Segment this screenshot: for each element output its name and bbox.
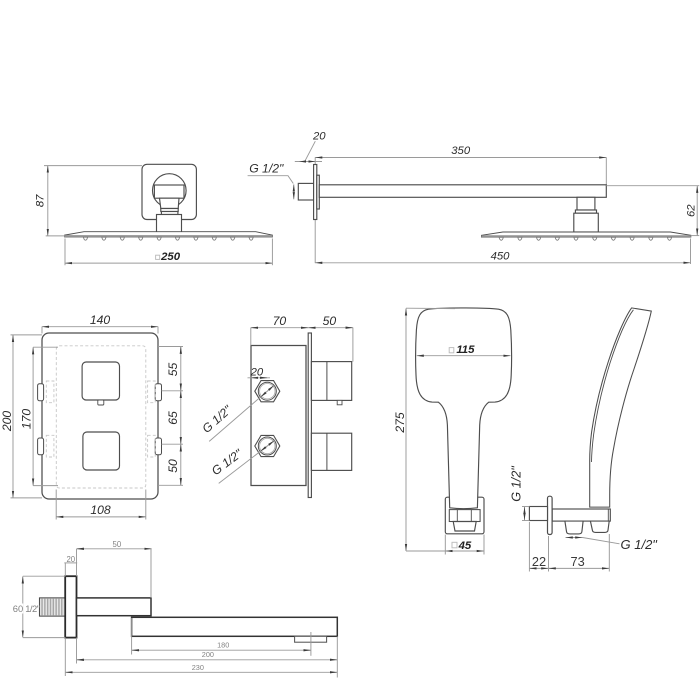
svg-text:50: 50 xyxy=(323,314,337,328)
svg-text:22: 22 xyxy=(532,554,546,569)
svg-text:180: 180 xyxy=(217,640,229,649)
svg-text:73: 73 xyxy=(570,554,584,569)
svg-text:50: 50 xyxy=(113,540,122,549)
svg-text:50: 50 xyxy=(166,459,180,473)
svg-text:G 1/2": G 1/2" xyxy=(249,162,284,176)
svg-text:450: 450 xyxy=(491,250,511,262)
svg-text:87: 87 xyxy=(35,194,47,207)
svg-text:115: 115 xyxy=(456,344,475,356)
svg-text:200: 200 xyxy=(0,411,14,433)
svg-text:20: 20 xyxy=(250,367,264,379)
svg-text:108: 108 xyxy=(90,503,111,517)
svg-text:140: 140 xyxy=(90,313,111,327)
svg-text:G 1/2": G 1/2" xyxy=(621,537,659,552)
svg-text:65: 65 xyxy=(166,411,180,425)
svg-text:70: 70 xyxy=(273,314,287,328)
svg-text:55: 55 xyxy=(166,363,180,377)
svg-text:60: 60 xyxy=(13,603,23,614)
svg-text:62: 62 xyxy=(685,204,697,217)
svg-text:275: 275 xyxy=(393,412,407,434)
svg-text:20: 20 xyxy=(312,130,326,142)
svg-text:170: 170 xyxy=(20,409,34,430)
svg-text:45: 45 xyxy=(458,540,472,552)
svg-text:350: 350 xyxy=(451,145,471,157)
svg-text:G 1/2": G 1/2" xyxy=(509,466,523,502)
svg-text:200: 200 xyxy=(202,650,214,659)
svg-text:250: 250 xyxy=(160,251,181,263)
svg-text:230: 230 xyxy=(192,663,204,672)
svg-text:1/2": 1/2" xyxy=(25,603,40,614)
